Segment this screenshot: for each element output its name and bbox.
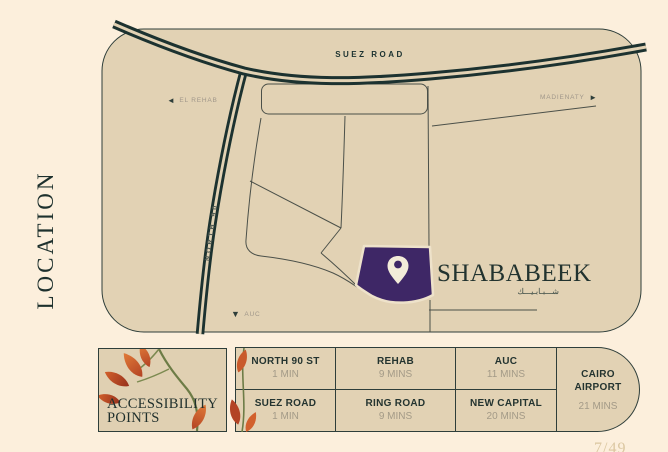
- table-cell-ring-road: RING ROAD 9 MINS: [336, 390, 456, 432]
- table-cell-suez-road: SUEZ ROAD 1 MIN: [236, 390, 336, 432]
- madienaty-text: MADIENATY: [540, 94, 585, 101]
- accessibility-table: NORTH 90 ST 1 MIN REHAB 9 MINS AUC 11 MI…: [235, 347, 640, 432]
- table-cell-auc: AUC 11 MINS: [456, 348, 557, 390]
- brand-wordmark: SHABABEEK: [437, 261, 559, 286]
- brand-arabic: شـــبـابـيـــك: [437, 287, 559, 296]
- right-arrow-icon: ►: [589, 93, 597, 102]
- el-rehab-text: EL REHAB: [179, 97, 217, 104]
- table-cell-north90st: NORTH 90 ST 1 MIN: [236, 348, 336, 390]
- left-arrow-icon: ◄: [167, 96, 175, 105]
- suez-road-label: SUEZ ROAD: [318, 50, 422, 59]
- accessibility-panel: ACCESSIBILITY POINTS: [98, 348, 227, 432]
- auc-text: AUC: [244, 311, 260, 318]
- auc-label: ▼ AUC: [231, 303, 261, 321]
- table-cell-new-capital: NEW CAPITAL 20 MINS: [456, 390, 557, 432]
- accessibility-title-line2: POINTS: [107, 412, 218, 426]
- el-rehab-label: ◄ EL REHAB: [167, 89, 218, 107]
- madienaty-label: MADIENATY ►: [540, 86, 597, 104]
- brochure-page: LOCATION: [0, 0, 668, 452]
- accessibility-title: ACCESSIBILITY POINTS: [107, 398, 218, 426]
- down-arrow-icon: ▼: [231, 309, 240, 319]
- page-number: 7/49: [594, 440, 626, 452]
- brand-block: SHABABEEK شـــبـابـيـــك: [437, 261, 559, 296]
- table-cell-rehab: REHAB 9 MINS: [336, 348, 456, 390]
- table-cell-cairo-airport: CAIRO AIRPORT 21 MINS: [557, 348, 639, 431]
